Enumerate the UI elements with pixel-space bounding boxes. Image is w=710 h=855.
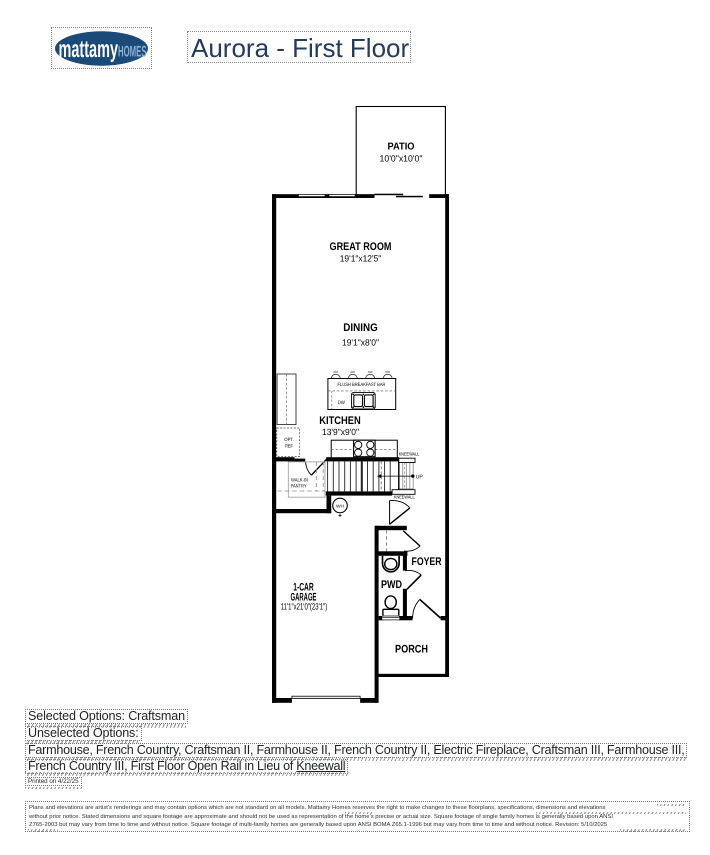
svg-text:REF: REF [285, 444, 293, 449]
svg-text:PATIO: PATIO [388, 142, 415, 153]
svg-text:DW: DW [338, 400, 345, 406]
svg-text:10'0"x10'0": 10'0"x10'0" [380, 154, 423, 164]
svg-text:UP: UP [416, 474, 423, 480]
svg-text:FLUSH BREAKFAST BAR: FLUSH BREAKFAST BAR [338, 382, 386, 388]
svg-text:OPT.: OPT. [284, 437, 294, 442]
svg-text:19'1"x12'5": 19'1"x12'5" [340, 254, 382, 264]
svg-text:13'9"x9'0": 13'9"x9'0" [322, 427, 359, 437]
svg-text:KNEEWALL: KNEEWALL [394, 495, 415, 500]
svg-text:PWD: PWD [381, 579, 402, 591]
svg-text:WH: WH [336, 503, 344, 508]
svg-text:PANTRY: PANTRY [291, 483, 308, 489]
svg-text:DINING: DINING [343, 322, 378, 334]
svg-text:11'1"x21'0"(23'1"): 11'1"x21'0"(23'1") [281, 602, 328, 612]
svg-text:FOYER: FOYER [412, 556, 442, 568]
svg-text:PORCH: PORCH [395, 644, 428, 656]
svg-text:KITCHEN: KITCHEN [319, 415, 361, 427]
svg-text:19'1"x8'0": 19'1"x8'0" [342, 338, 379, 348]
svg-text:GREAT ROOM: GREAT ROOM [330, 241, 392, 253]
svg-text:KNEEWALL: KNEEWALL [399, 452, 420, 457]
